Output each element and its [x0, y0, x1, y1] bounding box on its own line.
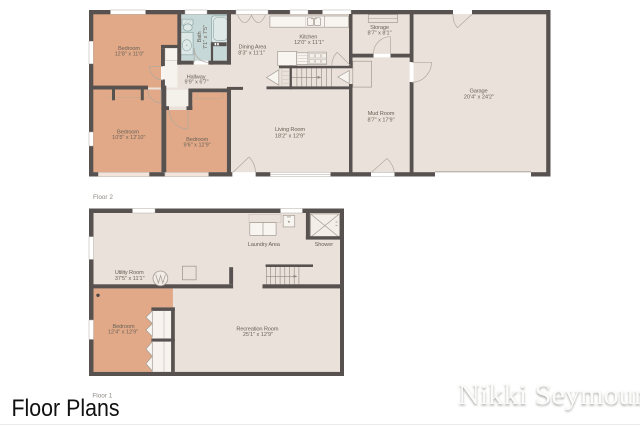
- svg-text:9'9" x 6'7": 9'9" x 6'7": [184, 80, 208, 86]
- svg-text:Shower: Shower: [315, 242, 334, 248]
- svg-text:20'4" x 24'2": 20'4" x 24'2": [464, 95, 494, 101]
- svg-text:10'5" x 12'10": 10'5" x 12'10": [112, 135, 145, 141]
- svg-text:9'6" x 12'9": 9'6" x 12'9": [184, 143, 211, 149]
- svg-text:37'5" x 11'1": 37'5" x 11'1": [115, 276, 145, 282]
- svg-text:Mud Room: Mud Room: [368, 111, 395, 117]
- svg-text:8'3" x 11'1": 8'3" x 11'1": [238, 51, 265, 57]
- svg-text:Garage: Garage: [469, 89, 487, 95]
- svg-text:Laundry Area: Laundry Area: [248, 242, 281, 248]
- svg-text:12'4" x 12'9": 12'4" x 12'9": [108, 330, 138, 336]
- svg-text:8'7" x 8'1": 8'7" x 8'1": [367, 31, 391, 37]
- svg-text:12'0" x 11'1": 12'0" x 11'1": [294, 40, 324, 46]
- svg-text:Floor Plans: Floor Plans: [12, 395, 120, 422]
- svg-text:12'8" x 11'0": 12'8" x 11'0": [115, 52, 145, 58]
- svg-text:Floor 2: Floor 2: [93, 194, 113, 201]
- svg-text:Utility Room: Utility Room: [115, 270, 144, 276]
- svg-text:7'1" x 7'5": 7'1" x 7'5": [203, 25, 209, 49]
- svg-text:18'2" x 12'9": 18'2" x 12'9": [275, 134, 305, 140]
- svg-text:Living Room: Living Room: [275, 127, 305, 133]
- svg-text:25'1" x 12'9": 25'1" x 12'9": [243, 332, 273, 338]
- svg-text:Nikki Seymour: Nikki Seymour: [458, 379, 640, 411]
- svg-text:8'7" x 17'9": 8'7" x 17'9": [367, 118, 394, 124]
- svg-text:Dining Area: Dining Area: [239, 45, 268, 51]
